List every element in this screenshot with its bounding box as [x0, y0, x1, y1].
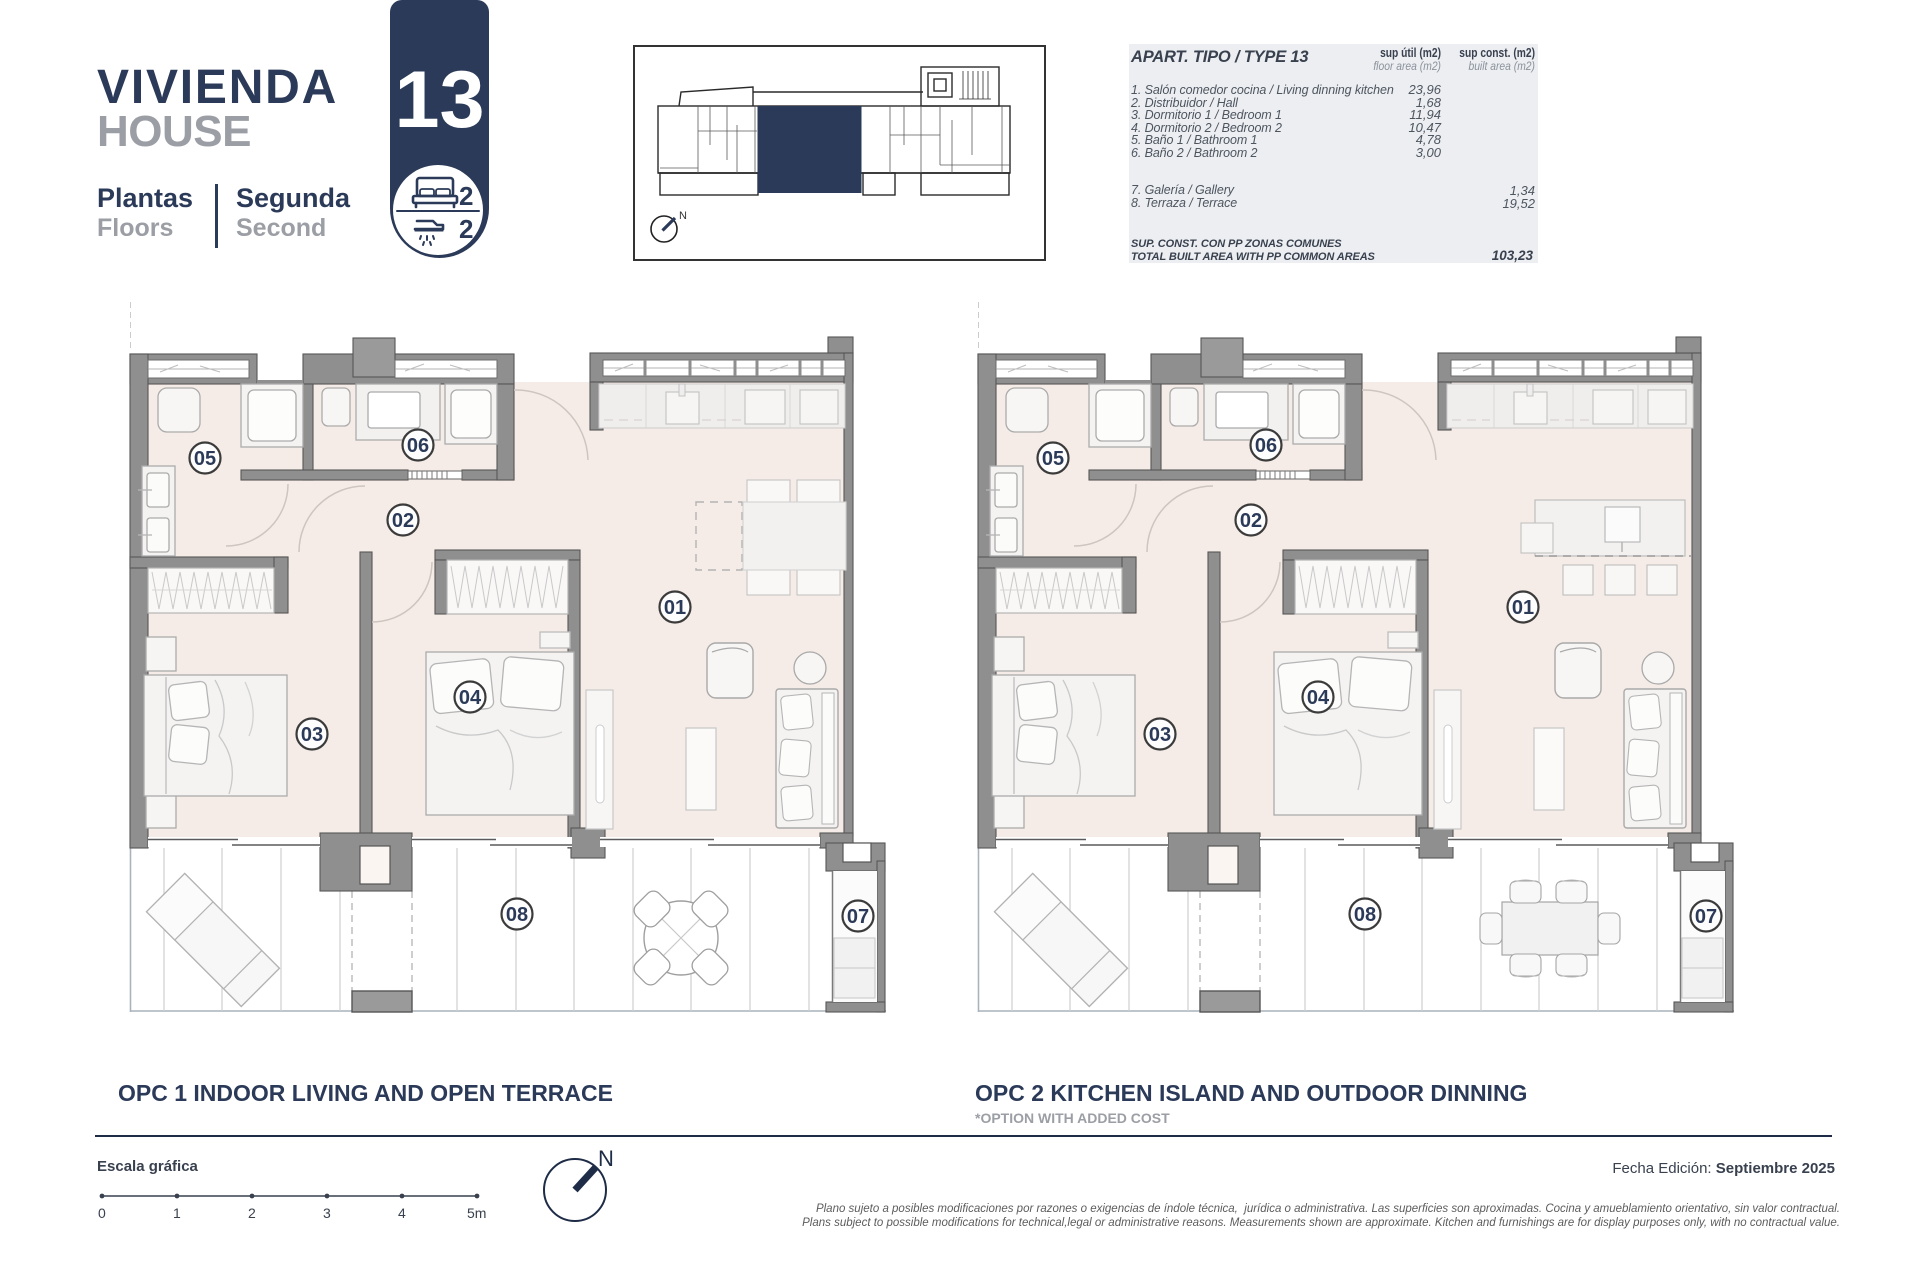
svg-text:4: 4 [398, 1205, 406, 1221]
svg-text:3: 3 [323, 1205, 331, 1221]
svg-text:2: 2 [248, 1205, 256, 1221]
svg-text:5m: 5m [467, 1205, 486, 1221]
svg-text:1: 1 [173, 1205, 181, 1221]
svg-text:0: 0 [98, 1205, 106, 1221]
svg-text:N: N [598, 1146, 614, 1171]
